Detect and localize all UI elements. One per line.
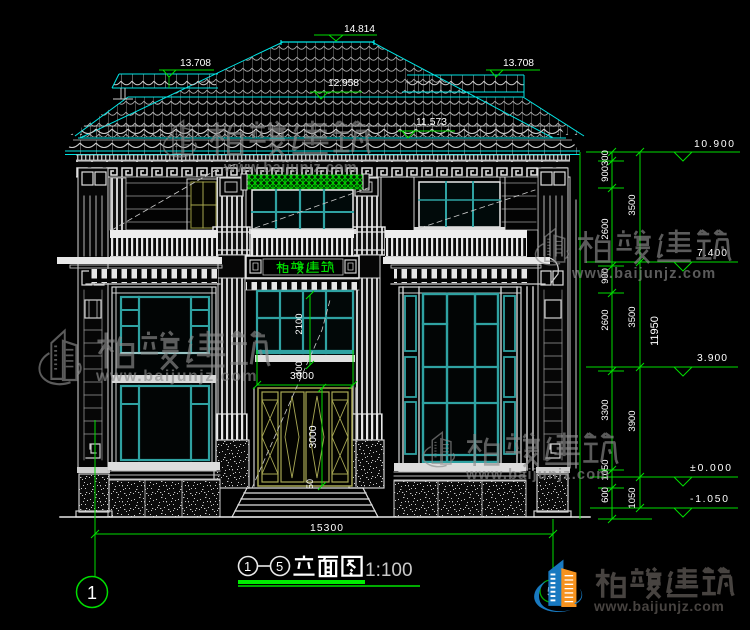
svg-text:3500: 3500 — [627, 194, 638, 215]
svg-text:1: 1 — [87, 583, 97, 603]
svg-text:13.708: 13.708 — [503, 58, 534, 69]
svg-text:15300: 15300 — [310, 523, 343, 534]
svg-text:2100: 2100 — [294, 313, 305, 334]
svg-text:11950: 11950 — [649, 316, 661, 346]
svg-text:www.baijunjz.com: www.baijunjz.com — [95, 368, 258, 385]
svg-text:3900: 3900 — [627, 410, 638, 431]
svg-text:400: 400 — [294, 361, 305, 377]
svg-text:1050: 1050 — [627, 487, 638, 508]
svg-text:3500: 3500 — [627, 306, 638, 327]
svg-text:11.573: 11.573 — [416, 117, 447, 128]
svg-text:5: 5 — [276, 559, 283, 574]
svg-text:2600: 2600 — [600, 309, 611, 330]
svg-text:3300: 3300 — [600, 399, 611, 420]
svg-text:600: 600 — [600, 487, 611, 503]
svg-text:14.814: 14.814 — [344, 24, 375, 35]
svg-text:3.900: 3.900 — [697, 353, 727, 364]
svg-text:12.958: 12.958 — [328, 78, 359, 89]
svg-text:1: 1 — [244, 559, 251, 574]
svg-text:1:100: 1:100 — [365, 560, 413, 581]
svg-text:13.708: 13.708 — [180, 58, 211, 69]
svg-text:www.baijunjz.com: www.baijunjz.com — [223, 160, 357, 176]
svg-text:www.baijunjz.com: www.baijunjz.com — [571, 266, 716, 282]
svg-text:50: 50 — [305, 479, 315, 489]
svg-text:900300: 900300 — [600, 150, 611, 182]
svg-text:3000: 3000 — [308, 425, 319, 448]
svg-text:www.baijunjz.com: www.baijunjz.com — [465, 467, 610, 483]
svg-text:-1.050: -1.050 — [690, 494, 728, 505]
svg-text:2600: 2600 — [600, 218, 611, 239]
svg-text:www.baijunjz.com: www.baijunjz.com — [593, 598, 724, 614]
